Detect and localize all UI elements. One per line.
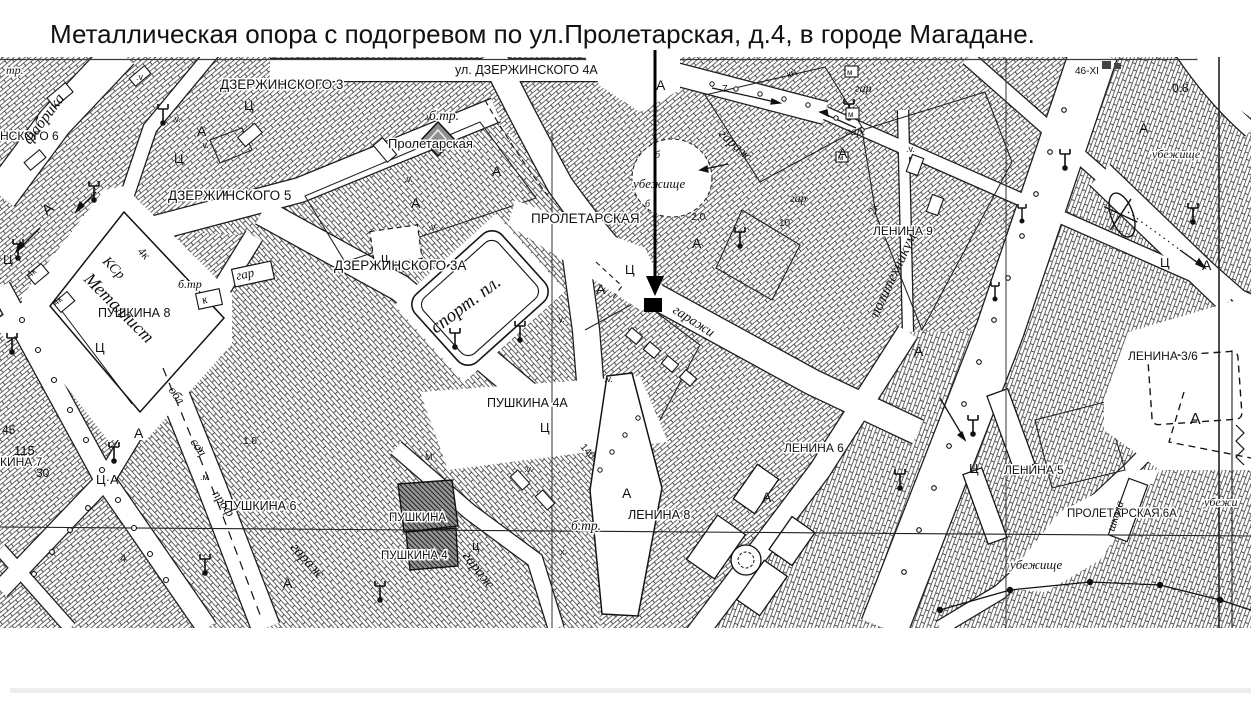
svg-text:м: м xyxy=(848,110,854,119)
svg-text:.v.: .v. xyxy=(424,112,433,122)
svg-text:ДЗЕРЖИНСКОГО 5: ДЗЕРЖИНСКОГО 5 xyxy=(168,188,291,203)
svg-text:1.0: 1.0 xyxy=(243,436,257,447)
svg-text:А: А xyxy=(692,235,702,251)
svg-text:Ц: Ц xyxy=(244,98,254,113)
svg-text:30: 30 xyxy=(36,466,50,480)
svg-text:Ц: Ц xyxy=(1160,255,1170,270)
svg-text:Пролетарская: Пролетарская xyxy=(388,136,473,151)
svg-text:А: А xyxy=(622,485,632,501)
svg-text:.v.: .v. xyxy=(604,374,613,384)
svg-text:Ц: Ц xyxy=(540,420,550,435)
svg-text:ЛЕНИНА 5: ЛЕНИНА 5 xyxy=(1004,463,1064,477)
svg-text:.v.: .v. xyxy=(404,174,413,184)
svg-text:ц: ц xyxy=(381,250,389,265)
svg-text:убежище: убежище xyxy=(1151,147,1201,161)
svg-text:Ц: Ц xyxy=(95,340,105,355)
svg-text:.v.: .v. xyxy=(556,314,565,324)
svg-text:тр.: тр. xyxy=(6,63,24,77)
svg-text:·v·: ·v· xyxy=(428,222,439,232)
svg-text:А: А xyxy=(134,425,144,441)
svg-text:А: А xyxy=(656,77,666,93)
svg-text:А: А xyxy=(411,195,421,211)
svg-text:А: А xyxy=(492,163,502,179)
svg-text:Металлическая опора с подогрев: Металлическая опора с подогревом по ул.П… xyxy=(50,19,1035,49)
svg-text:убежище: убежище xyxy=(1008,557,1062,572)
svg-text:ул. ДЗЕРЖИНСКОГО 4А: ул. ДЗЕРЖИНСКОГО 4А xyxy=(455,63,598,77)
svg-text:.v.: .v. xyxy=(200,140,209,150)
svg-text:А: А xyxy=(762,489,772,505)
svg-text:ДЗЕРЖИНСКОГО 3А: ДЗЕРЖИНСКОГО 3А xyxy=(334,258,466,273)
svg-text:ДЗЕРЖИНСКОГО 3: ДЗЕРЖИНСКОГО 3 xyxy=(220,77,343,92)
svg-text:А: А xyxy=(914,343,924,359)
svg-text:А: А xyxy=(838,145,848,161)
svg-text:б.тр.: б.тр. xyxy=(429,108,459,123)
svg-text:Ц: Ц xyxy=(174,151,184,166)
svg-text:-2.0: -2.0 xyxy=(688,212,706,223)
svg-text:.v.: .v. xyxy=(136,72,145,82)
svg-text:.м: .м xyxy=(200,472,209,482)
svg-text:б.тр: б.тр xyxy=(178,277,202,291)
svg-text:ПРОЛЕТАРСКАЯ: ПРОЛЕТАРСКАЯ xyxy=(531,211,640,226)
svg-text:.v.: .v. xyxy=(196,444,205,454)
svg-text:гар: гар xyxy=(855,81,872,95)
svg-text:Ц: Ц xyxy=(625,262,635,277)
svg-text:А: А xyxy=(1139,120,1149,136)
svg-text:Ц·А: Ц·А xyxy=(96,472,119,487)
svg-text:Ц: Ц xyxy=(969,461,979,476)
svg-text:46-XI: 46-XI xyxy=(1075,66,1099,77)
svg-text:х: х xyxy=(560,547,565,557)
svg-text:убежи: убежи xyxy=(1203,495,1238,509)
svg-text:7: 7 xyxy=(722,84,728,95)
svg-text:А: А xyxy=(197,123,207,139)
svg-text:ц: ц xyxy=(472,538,480,553)
svg-text:.v.: .v. xyxy=(906,144,915,154)
svg-text:Ц: Ц xyxy=(3,252,13,267)
svg-text:А: А xyxy=(283,575,293,591)
svg-text:10: 10 xyxy=(779,218,791,229)
svg-text:А: А xyxy=(1190,411,1201,428)
svg-text:.v.: .v. xyxy=(220,188,229,198)
svg-text:гар: гар xyxy=(790,191,807,205)
svg-text:45: 45 xyxy=(2,423,16,437)
svg-text:убежище: убежище xyxy=(631,176,685,191)
svg-text:ПУШКИНА 4А: ПУШКИНА 4А xyxy=(487,396,568,410)
svg-text:гар.: гар. xyxy=(846,124,866,138)
svg-text:ЛЕНИНА 6: ЛЕНИНА 6 xyxy=(784,441,844,455)
svg-text:0.8: 0.8 xyxy=(1172,81,1189,95)
svg-text:М: М xyxy=(425,452,433,462)
svg-text:ПУШКИНА: ПУШКИНА xyxy=(389,512,446,524)
svg-text:ЛЕНИНА 8: ЛЕНИНА 8 xyxy=(628,508,690,522)
svg-text:б.тр.: б.тр. xyxy=(571,518,601,533)
svg-text:м: м xyxy=(847,68,853,77)
svg-text:ПУШКИНА 4: ПУШКИНА 4 xyxy=(381,550,448,562)
svg-text:А: А xyxy=(596,281,606,297)
svg-text:.v.: .v. xyxy=(524,464,533,474)
svg-text:4: 4 xyxy=(120,553,126,565)
svg-text:ЛЕНИНА 3/6: ЛЕНИНА 3/6 xyxy=(1128,349,1198,363)
svg-text:115: 115 xyxy=(14,443,35,458)
svg-text:А: А xyxy=(1202,257,1212,273)
svg-text:.v.: .v. xyxy=(172,114,181,124)
